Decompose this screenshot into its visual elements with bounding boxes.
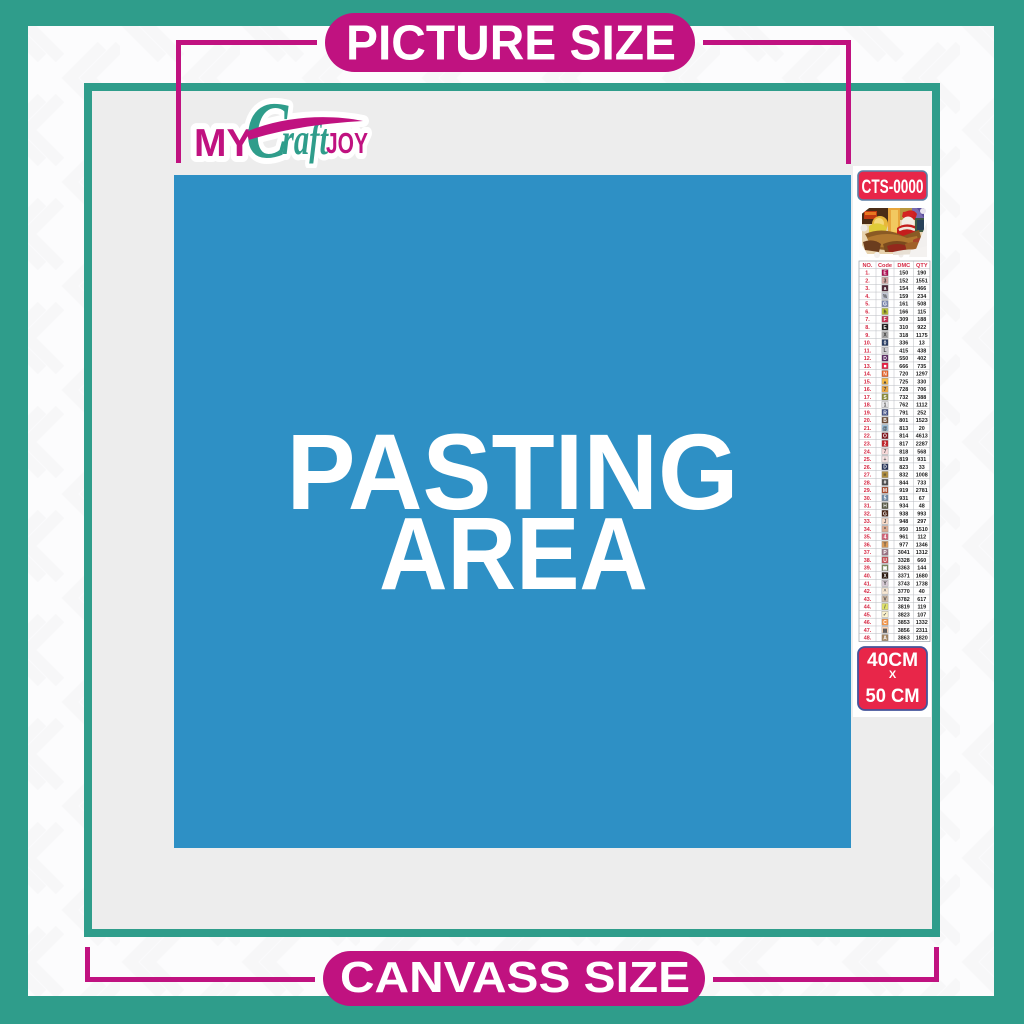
svg-text:QTY: QTY bbox=[916, 263, 928, 269]
svg-text:3371: 3371 bbox=[898, 573, 910, 579]
svg-text:a: a bbox=[884, 286, 887, 292]
svg-text:O: O bbox=[883, 434, 887, 440]
svg-text:16.: 16. bbox=[864, 387, 872, 393]
svg-text:0: 0 bbox=[884, 340, 887, 346]
svg-text:3782: 3782 bbox=[898, 597, 910, 603]
svg-text:36.: 36. bbox=[864, 542, 872, 548]
svg-text:5.: 5. bbox=[865, 302, 870, 308]
svg-text:961: 961 bbox=[899, 535, 908, 541]
svg-text:X: X bbox=[889, 669, 897, 681]
svg-text:33: 33 bbox=[919, 465, 925, 471]
svg-text:1112: 1112 bbox=[916, 403, 927, 409]
svg-text:166: 166 bbox=[899, 309, 908, 315]
svg-text:1346: 1346 bbox=[916, 542, 928, 548]
svg-text:19.: 19. bbox=[864, 410, 872, 416]
svg-text:660: 660 bbox=[917, 558, 926, 564]
svg-text:67: 67 bbox=[919, 496, 925, 502]
svg-text:823: 823 bbox=[899, 465, 908, 471]
svg-text:814: 814 bbox=[899, 434, 908, 440]
svg-text:4: 4 bbox=[884, 535, 887, 541]
svg-text:9.: 9. bbox=[865, 333, 870, 339]
svg-text:H: H bbox=[883, 504, 887, 510]
svg-text:1.: 1. bbox=[865, 271, 870, 277]
svg-text:112: 112 bbox=[917, 535, 926, 541]
svg-text:1332: 1332 bbox=[916, 620, 928, 626]
svg-text:R: R bbox=[883, 410, 887, 416]
svg-text:29.: 29. bbox=[864, 488, 872, 494]
svg-text:32.: 32. bbox=[864, 511, 872, 517]
svg-text:38.: 38. bbox=[864, 558, 872, 564]
svg-text:3328: 3328 bbox=[898, 558, 910, 564]
svg-text:31.: 31. bbox=[864, 504, 872, 510]
svg-text:44.: 44. bbox=[864, 605, 872, 611]
svg-text:832: 832 bbox=[899, 473, 908, 479]
svg-text:24.: 24. bbox=[864, 449, 872, 455]
svg-text:1510: 1510 bbox=[916, 527, 928, 533]
svg-text:819: 819 bbox=[899, 457, 908, 463]
svg-text:1551: 1551 bbox=[916, 278, 928, 284]
svg-text:931: 931 bbox=[917, 457, 926, 463]
svg-text:N: N bbox=[883, 372, 887, 378]
svg-text:10.: 10. bbox=[864, 341, 872, 347]
svg-text:22.: 22. bbox=[864, 434, 872, 440]
svg-text:L: L bbox=[883, 348, 886, 354]
svg-text:919: 919 bbox=[899, 488, 908, 494]
svg-text:1312: 1312 bbox=[916, 550, 928, 556]
svg-text:1: 1 bbox=[884, 403, 887, 409]
svg-text:G: G bbox=[883, 511, 887, 517]
svg-text:188: 188 bbox=[917, 317, 926, 323]
svg-text:801: 801 bbox=[899, 418, 908, 424]
svg-text:1297: 1297 bbox=[916, 372, 928, 378]
svg-text:508: 508 bbox=[917, 302, 926, 308]
svg-text:40.: 40. bbox=[864, 573, 872, 579]
svg-text:8.: 8. bbox=[865, 325, 870, 331]
svg-text:310: 310 bbox=[899, 325, 908, 331]
svg-text:C: C bbox=[883, 620, 887, 626]
svg-text:48: 48 bbox=[919, 504, 925, 510]
svg-text:12.: 12. bbox=[864, 356, 872, 362]
svg-text:h: h bbox=[883, 309, 886, 315]
svg-text:415: 415 bbox=[899, 348, 908, 354]
svg-text:733: 733 bbox=[917, 480, 926, 486]
svg-text:190: 190 bbox=[917, 271, 926, 277]
svg-text:13: 13 bbox=[919, 341, 925, 347]
svg-text:18.: 18. bbox=[864, 403, 872, 409]
svg-text:3743: 3743 bbox=[898, 581, 910, 587]
svg-text:107: 107 bbox=[917, 612, 926, 618]
svg-text:50 CM: 50 CM bbox=[866, 686, 920, 707]
svg-text:938: 938 bbox=[899, 511, 908, 517]
svg-text:330: 330 bbox=[917, 379, 926, 385]
svg-text:4.: 4. bbox=[865, 294, 870, 300]
svg-text:3: 3 bbox=[884, 278, 887, 284]
svg-text:A: A bbox=[883, 636, 887, 642]
svg-text:2287: 2287 bbox=[916, 441, 928, 447]
svg-text:977: 977 bbox=[899, 542, 908, 548]
svg-text:CTS-0000: CTS-0000 bbox=[862, 177, 924, 198]
svg-text:922: 922 bbox=[917, 325, 926, 331]
svg-text:3770: 3770 bbox=[898, 589, 910, 595]
svg-text:1175: 1175 bbox=[916, 333, 928, 339]
svg-text:42.: 42. bbox=[864, 589, 872, 595]
svg-text:Code: Code bbox=[878, 263, 892, 269]
svg-text:47.: 47. bbox=[864, 628, 872, 634]
svg-text:791: 791 bbox=[899, 410, 908, 416]
svg-text:48.: 48. bbox=[864, 636, 872, 642]
svg-text:33.: 33. bbox=[864, 519, 872, 525]
svg-text:950: 950 bbox=[899, 527, 908, 533]
svg-text:844: 844 bbox=[899, 480, 908, 486]
svg-text:7: 7 bbox=[884, 449, 887, 455]
svg-text:3819: 3819 bbox=[898, 605, 910, 611]
svg-text:154: 154 bbox=[899, 286, 908, 292]
svg-text:+: + bbox=[884, 457, 887, 463]
svg-text:14.: 14. bbox=[864, 372, 872, 378]
svg-text:NO.: NO. bbox=[863, 263, 873, 269]
svg-text:^: ^ bbox=[884, 589, 887, 595]
svg-text:MY: MY bbox=[194, 122, 253, 165]
svg-text:DMC: DMC bbox=[897, 263, 910, 269]
svg-text:%: % bbox=[883, 294, 888, 300]
svg-text:115: 115 bbox=[917, 309, 926, 315]
svg-text:119: 119 bbox=[917, 605, 926, 611]
svg-text:931: 931 bbox=[899, 496, 908, 502]
svg-text:46.: 46. bbox=[864, 620, 872, 626]
svg-text:813: 813 bbox=[899, 426, 908, 432]
svg-text:40CM: 40CM bbox=[867, 650, 918, 671]
svg-text:2: 2 bbox=[884, 441, 887, 447]
svg-text:948: 948 bbox=[899, 519, 908, 525]
svg-text:43.: 43. bbox=[864, 597, 872, 603]
svg-text:*: * bbox=[884, 527, 886, 533]
svg-text:27.: 27. bbox=[864, 473, 872, 479]
svg-text:▣: ▣ bbox=[883, 566, 888, 572]
svg-text:1738: 1738 bbox=[916, 581, 928, 587]
svg-text:7: 7 bbox=[884, 387, 887, 393]
svg-text:159: 159 bbox=[899, 294, 908, 300]
svg-text:725: 725 bbox=[899, 379, 908, 385]
svg-text:7.: 7. bbox=[865, 317, 870, 323]
svg-text:35.: 35. bbox=[864, 535, 872, 541]
svg-text:20.: 20. bbox=[864, 418, 872, 424]
svg-text:1008: 1008 bbox=[916, 473, 928, 479]
svg-text:U: U bbox=[883, 558, 887, 564]
svg-text:CANVASS SIZE: CANVASS SIZE bbox=[340, 953, 690, 1002]
svg-text:3863: 3863 bbox=[898, 636, 910, 642]
svg-text:M: M bbox=[883, 488, 887, 494]
svg-text:41.: 41. bbox=[864, 581, 872, 587]
svg-text:17.: 17. bbox=[864, 395, 872, 401]
svg-text:152: 152 bbox=[899, 278, 908, 284]
svg-text:T: T bbox=[883, 542, 886, 548]
svg-text:13.: 13. bbox=[864, 364, 872, 370]
svg-text:39.: 39. bbox=[864, 566, 872, 572]
svg-text:252: 252 bbox=[917, 410, 926, 416]
svg-text:34.: 34. bbox=[864, 527, 872, 533]
svg-text:40: 40 bbox=[919, 589, 925, 595]
svg-text:✓: ✓ bbox=[883, 612, 887, 618]
svg-text:11.: 11. bbox=[864, 348, 872, 354]
svg-text:5: 5 bbox=[884, 496, 887, 502]
svg-text:309: 309 bbox=[899, 317, 908, 323]
svg-text:2781: 2781 bbox=[916, 488, 928, 494]
svg-text:28.: 28. bbox=[864, 480, 872, 486]
svg-text:3041: 3041 bbox=[898, 550, 910, 556]
svg-text:AREA: AREA bbox=[379, 496, 648, 611]
svg-text:150: 150 bbox=[899, 271, 908, 277]
svg-text:15.: 15. bbox=[864, 379, 872, 385]
svg-text:21.: 21. bbox=[864, 426, 872, 432]
svg-text:1820: 1820 bbox=[916, 636, 928, 642]
svg-text:4613: 4613 bbox=[916, 434, 928, 440]
svg-text:23.: 23. bbox=[864, 441, 872, 447]
svg-text:993: 993 bbox=[917, 511, 926, 517]
svg-text:934: 934 bbox=[899, 504, 908, 510]
svg-text:161: 161 bbox=[899, 302, 908, 308]
svg-text:▩: ▩ bbox=[883, 628, 888, 634]
svg-text:D: D bbox=[883, 356, 887, 362]
svg-text:■: ■ bbox=[883, 364, 886, 370]
svg-text:817: 817 bbox=[899, 441, 908, 447]
svg-text:617: 617 bbox=[917, 597, 926, 603]
svg-text:2311: 2311 bbox=[916, 628, 928, 634]
svg-text:30.: 30. bbox=[864, 496, 872, 502]
svg-text:1680: 1680 bbox=[916, 573, 928, 579]
svg-text:818: 818 bbox=[899, 449, 908, 455]
svg-text:G: G bbox=[883, 302, 887, 308]
svg-text:37.: 37. bbox=[864, 550, 872, 556]
svg-text:20: 20 bbox=[919, 426, 925, 432]
svg-text:45.: 45. bbox=[864, 612, 872, 618]
svg-text:735: 735 bbox=[917, 364, 926, 370]
svg-text:568: 568 bbox=[917, 449, 926, 455]
svg-text:3.: 3. bbox=[865, 286, 870, 292]
svg-text:234: 234 bbox=[917, 294, 926, 300]
svg-text:3363: 3363 bbox=[898, 566, 910, 572]
svg-text:#: # bbox=[884, 480, 887, 486]
svg-text:6.: 6. bbox=[865, 309, 870, 315]
svg-text:25.: 25. bbox=[864, 457, 872, 463]
svg-text:JOY: JOY bbox=[326, 128, 368, 160]
svg-text:720: 720 bbox=[899, 372, 908, 378]
svg-text:318: 318 bbox=[899, 333, 908, 339]
svg-text:2.: 2. bbox=[865, 278, 870, 284]
svg-text:336: 336 bbox=[899, 341, 908, 347]
svg-text:762: 762 bbox=[899, 403, 908, 409]
svg-text:1523: 1523 bbox=[916, 418, 928, 424]
svg-text:297: 297 bbox=[917, 519, 926, 525]
svg-text:B: B bbox=[883, 418, 887, 424]
svg-text:26.: 26. bbox=[864, 465, 872, 471]
svg-text:728: 728 bbox=[899, 387, 908, 393]
svg-text:388: 388 bbox=[917, 395, 926, 401]
svg-text:550: 550 bbox=[899, 356, 908, 362]
svg-text:D: D bbox=[883, 465, 887, 471]
svg-text:≡: ≡ bbox=[884, 472, 887, 478]
svg-text:3856: 3856 bbox=[898, 628, 910, 634]
svg-text:J: J bbox=[884, 519, 887, 525]
svg-text:732: 732 bbox=[899, 395, 908, 401]
svg-text:402: 402 bbox=[917, 356, 926, 362]
svg-text:666: 666 bbox=[899, 364, 908, 370]
svg-text:3853: 3853 bbox=[898, 620, 910, 626]
svg-text:PICTURE SIZE: PICTURE SIZE bbox=[346, 17, 676, 71]
svg-text:▲: ▲ bbox=[883, 379, 888, 385]
svg-text:3823: 3823 bbox=[898, 612, 910, 618]
svg-text:466: 466 bbox=[917, 286, 926, 292]
svg-text:F: F bbox=[883, 317, 886, 323]
svg-text:438: 438 bbox=[917, 348, 926, 354]
svg-text:@: @ bbox=[883, 426, 888, 432]
svg-text:144: 144 bbox=[917, 566, 926, 572]
svg-text:706: 706 bbox=[917, 387, 926, 393]
